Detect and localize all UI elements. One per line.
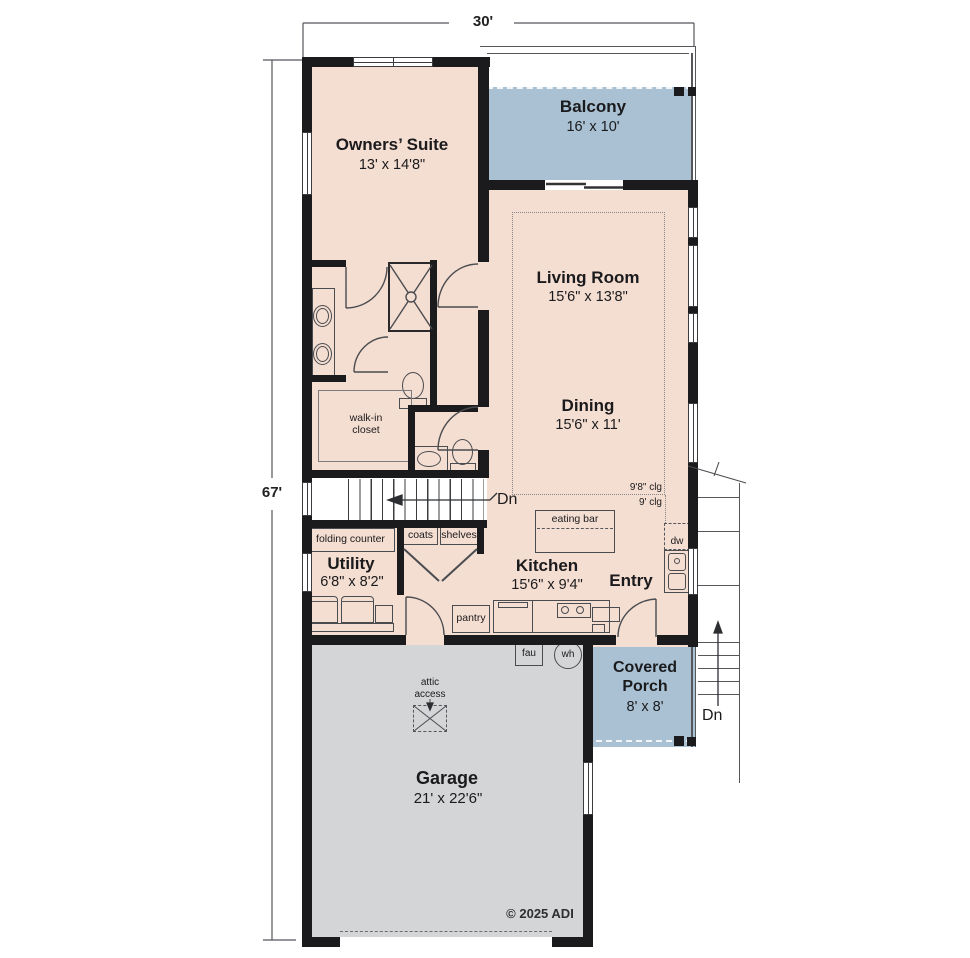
ceiling-low-label: 9' clg bbox=[562, 497, 662, 509]
ceiling-zone-extension bbox=[665, 495, 666, 523]
covered-porch-name: Covered Porch bbox=[595, 659, 695, 697]
fau-label: fau bbox=[515, 648, 543, 660]
wall-stair-top bbox=[302, 470, 488, 478]
utility-base-cabinet bbox=[306, 623, 394, 632]
dim-top-label: 30' bbox=[443, 13, 523, 31]
balcony-slider-gap bbox=[545, 180, 623, 190]
covered-porch-size: 8' x 8' bbox=[595, 699, 695, 716]
wall-garage-bottom-right bbox=[552, 937, 593, 947]
window-living-3 bbox=[688, 313, 698, 343]
opening-garage-door bbox=[406, 635, 444, 645]
wall-stair-bottom bbox=[302, 520, 487, 528]
entry-bench-2 bbox=[592, 624, 605, 633]
pantry-label: pantry bbox=[452, 612, 490, 624]
floor-plan: 30' 67' Owners’ Suite 13' x 14'8" Balcon… bbox=[0, 0, 970, 958]
attic-access-label: attic access bbox=[400, 677, 460, 701]
fridge-dispenser bbox=[498, 602, 528, 608]
entry-name: Entry bbox=[581, 571, 681, 591]
wall-garage-left bbox=[302, 645, 312, 947]
dw-label: dw bbox=[664, 536, 690, 548]
window-living-1 bbox=[688, 207, 698, 238]
washer-lid-line bbox=[308, 601, 338, 602]
living-room-name: Living Room bbox=[488, 268, 688, 288]
garage-door-dashed bbox=[340, 931, 552, 932]
utility-side-box bbox=[375, 605, 393, 623]
dining-name: Dining bbox=[488, 396, 688, 416]
window-living-2 bbox=[688, 245, 698, 307]
utility-size: 6'8" x 8'2" bbox=[272, 574, 432, 591]
balcony-name: Balcony bbox=[493, 97, 693, 117]
balcony-post-2 bbox=[688, 87, 696, 96]
walk-in-closet-label: walk-in closet bbox=[326, 412, 406, 437]
wall-left-upper bbox=[302, 57, 312, 520]
porch-rail-outer bbox=[695, 647, 696, 747]
wall-bath2-left bbox=[408, 405, 415, 470]
dryer-lid-line bbox=[341, 601, 374, 602]
ceiling-height-zone bbox=[512, 212, 665, 495]
dining-size: 15'6" x 11' bbox=[488, 417, 688, 434]
balcony-size: 16' x 10' bbox=[493, 119, 693, 136]
exterior-stairs-treads bbox=[698, 642, 739, 707]
balcony-post-1 bbox=[674, 87, 684, 96]
wall-shower-right bbox=[430, 260, 437, 410]
roof-edge-top-inner bbox=[487, 53, 689, 54]
window-dining bbox=[688, 403, 698, 463]
porch-post-1 bbox=[674, 736, 684, 746]
wall-bath-top bbox=[310, 260, 346, 267]
opening-entry-door bbox=[616, 635, 657, 645]
eating-bar-label: eating bar bbox=[535, 513, 615, 525]
exterior-stair-arrowhead bbox=[714, 622, 722, 633]
roof-edge-top-outer bbox=[480, 46, 696, 47]
ext-landing-line-2 bbox=[698, 531, 740, 532]
window-entry-right bbox=[688, 548, 698, 595]
interior-stairs-treads bbox=[348, 479, 484, 520]
garage-size: 21' x 22'6" bbox=[348, 790, 548, 808]
burner-1 bbox=[561, 606, 569, 614]
dim-left-label: 67' bbox=[250, 484, 294, 502]
exterior-stairs-dn-label: Dn bbox=[702, 707, 734, 726]
toilet-2-bowl bbox=[452, 439, 473, 465]
utility-name: Utility bbox=[271, 554, 431, 574]
window-suite-top-mullion bbox=[393, 57, 394, 67]
porch-post-2 bbox=[687, 737, 696, 746]
ext-landing-line-3 bbox=[698, 585, 740, 586]
wh-label: wh bbox=[554, 649, 582, 661]
wall-coats-right bbox=[477, 520, 484, 554]
wall-garage-bottom-left bbox=[302, 937, 340, 947]
folding-counter-label: folding counter bbox=[306, 533, 395, 545]
shelves-label: shelves bbox=[440, 529, 478, 541]
shower bbox=[388, 262, 435, 332]
ceiling-high-label: 9'8" clg bbox=[562, 482, 662, 494]
living-room-size: 15'6" x 13'8" bbox=[488, 289, 688, 306]
bath2-sink bbox=[417, 451, 441, 467]
sink-faucet bbox=[674, 558, 680, 564]
ext-stairs-right-edge bbox=[739, 483, 740, 783]
copyright-label: © 2025 ADI bbox=[480, 906, 600, 921]
eating-bar-overhang-line bbox=[537, 528, 613, 529]
wall-bath2-top bbox=[408, 405, 480, 412]
interior-stairs-dn-label: Dn bbox=[497, 491, 527, 510]
owners-suite-size: 13' x 14'8" bbox=[292, 157, 492, 174]
owners-suite-name: Owners’ Suite bbox=[292, 135, 492, 155]
entry-bench-1 bbox=[592, 607, 620, 622]
window-stair-left bbox=[302, 482, 312, 516]
vanity-sink-2-inner bbox=[316, 346, 329, 362]
attic-access-box bbox=[413, 705, 447, 732]
window-garage-right bbox=[583, 762, 593, 815]
vanity-sink-1-inner bbox=[316, 308, 329, 324]
coats-label: coats bbox=[403, 529, 438, 541]
wall-vanity-bottom bbox=[310, 375, 346, 382]
burner-2 bbox=[576, 606, 584, 614]
roof-edge-right-outer bbox=[695, 46, 696, 180]
garage-door-opening bbox=[340, 937, 552, 947]
ext-landing-line-1 bbox=[698, 497, 740, 498]
garage-name: Garage bbox=[347, 768, 547, 789]
